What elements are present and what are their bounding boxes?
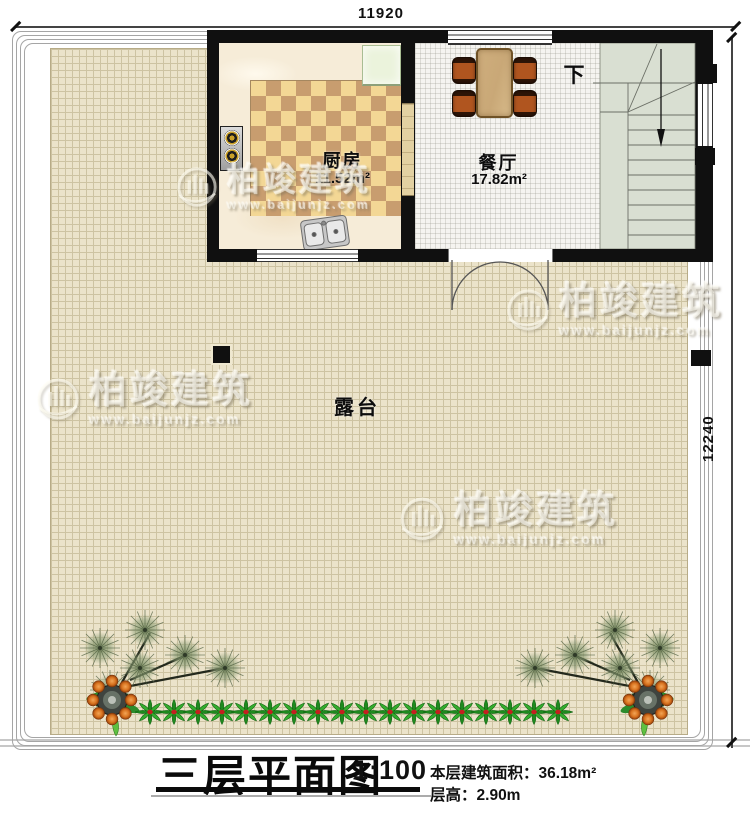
burner-icon bbox=[224, 130, 240, 146]
title-underline bbox=[156, 787, 420, 792]
chair bbox=[452, 57, 476, 84]
dimension-top-value: 11920 bbox=[331, 5, 431, 22]
railing-column bbox=[691, 350, 711, 366]
floor-height-value: 2.90m bbox=[477, 787, 521, 804]
chair bbox=[452, 90, 476, 117]
dimension-line-top bbox=[15, 26, 736, 28]
staircase bbox=[593, 43, 715, 249]
plan-scale: 1:100 bbox=[353, 755, 427, 786]
stair-window bbox=[697, 84, 713, 146]
french-doors bbox=[447, 260, 553, 322]
floor-area-value: 36.18m² bbox=[539, 765, 597, 782]
kitchen-sink bbox=[299, 214, 351, 252]
chair bbox=[513, 90, 537, 117]
kitchen-window bbox=[257, 249, 358, 262]
wall-pilaster bbox=[695, 148, 715, 165]
dimension-line-right bbox=[731, 38, 733, 748]
dimension-right-value: 12240 bbox=[700, 378, 717, 462]
chair bbox=[513, 57, 537, 84]
stove-cooktop bbox=[220, 126, 243, 171]
floor-area-label: 本层建筑面积： bbox=[430, 765, 539, 782]
floor-area-stat: 本层建筑面积：36.18m² bbox=[430, 761, 596, 783]
kitchen-area-label: 11.52m² bbox=[300, 170, 385, 187]
wall-pilaster bbox=[702, 64, 717, 83]
stairs-down-label: 下 bbox=[559, 59, 589, 89]
floor-height-stat: 层高：2.90m bbox=[430, 783, 520, 805]
terrace-label: 露台 bbox=[318, 391, 396, 420]
dining-area-label: 17.82m² bbox=[455, 171, 543, 188]
dining-table bbox=[476, 48, 513, 118]
kitchen-dining-opening bbox=[402, 103, 414, 196]
terrace-plants bbox=[35, 600, 715, 740]
hedge-row bbox=[135, 699, 573, 724]
floorplan-sheet: 厨房 11.52m² 餐厅 17.82m² 露台 下 11920 12240 柏… bbox=[0, 0, 750, 813]
title-underline-thin bbox=[151, 795, 431, 797]
floor-height-label: 层高： bbox=[430, 787, 477, 804]
burner-icon bbox=[224, 148, 240, 164]
dining-window bbox=[448, 30, 552, 45]
fridge bbox=[362, 45, 401, 86]
terrace-column bbox=[213, 346, 230, 363]
